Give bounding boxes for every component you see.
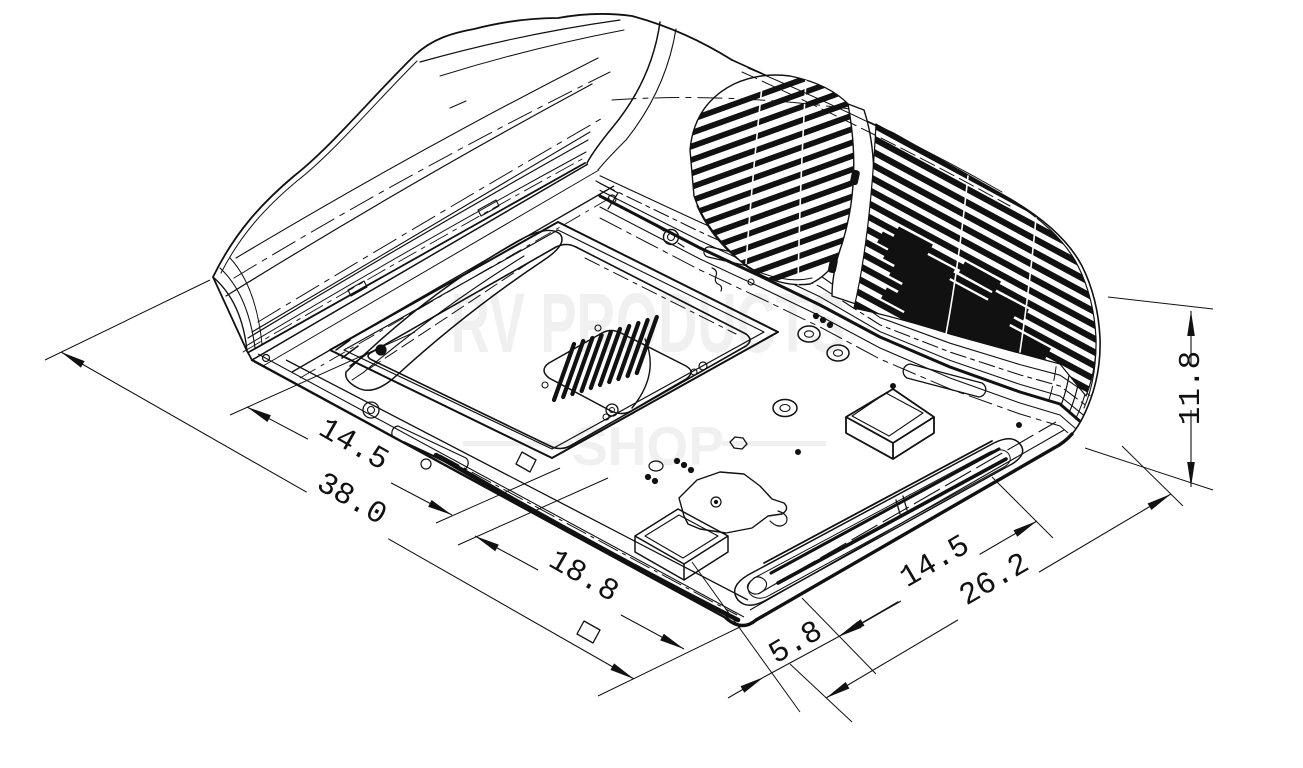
svg-text:11.8: 11.8 xyxy=(1174,351,1209,425)
svg-text:SHOP: SHOP xyxy=(572,415,724,477)
